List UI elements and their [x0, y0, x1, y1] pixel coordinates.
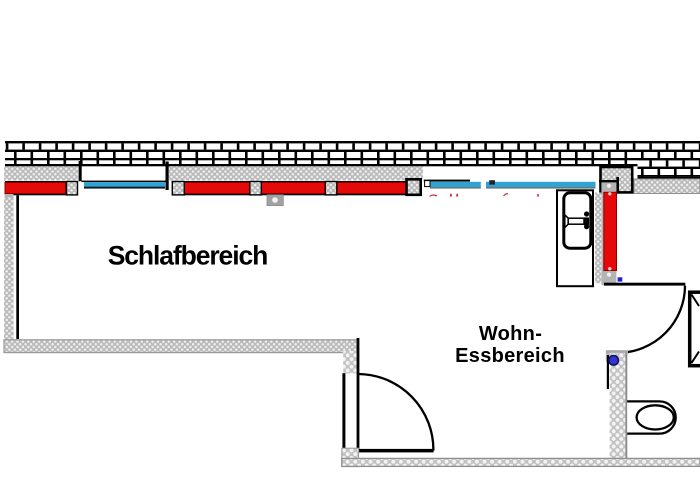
svg-text:Wohn-: Wohn-: [479, 323, 542, 345]
svg-text:Schlafbereich: Schlafbereich: [108, 241, 268, 271]
svg-text:Essbereich: Essbereich: [455, 345, 565, 367]
